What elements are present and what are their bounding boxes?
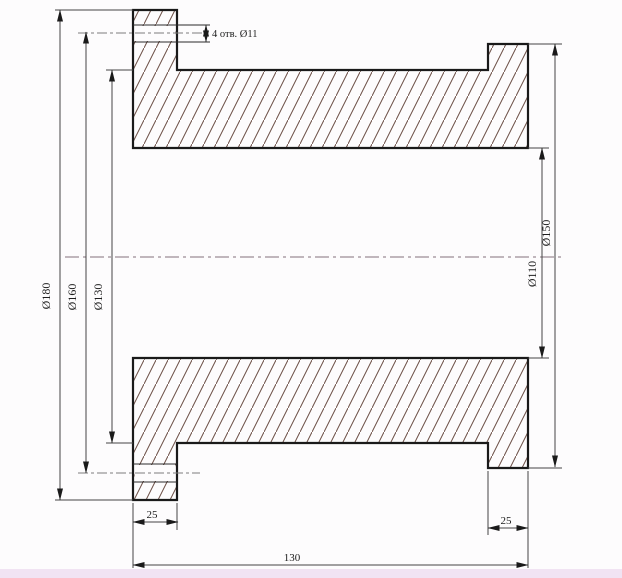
part-upper-section bbox=[133, 10, 528, 148]
label-flange-right-thickness: 25 bbox=[501, 515, 513, 527]
label-dia130: Ø130 bbox=[91, 284, 105, 311]
label-bolt-holes-note: 4 отв. Ø11 bbox=[212, 29, 257, 40]
label-dia160: Ø160 bbox=[65, 284, 79, 311]
engineering-drawing: Ø180 Ø160 Ø130 Ø150 Ø110 4 отв. Ø11 25 2… bbox=[0, 0, 622, 578]
part-section bbox=[133, 10, 528, 500]
label-overall-length: 130 bbox=[284, 552, 301, 564]
label-dia110: Ø110 bbox=[525, 261, 539, 287]
label-flange-left-thickness: 25 bbox=[147, 509, 159, 521]
part-lower-section bbox=[133, 358, 528, 500]
label-dia180: Ø180 bbox=[39, 283, 53, 310]
scan-artifact-strip bbox=[0, 569, 622, 578]
label-dia150: Ø150 bbox=[539, 220, 553, 247]
drawing-canvas: Ø180 Ø160 Ø130 Ø150 Ø110 4 отв. Ø11 25 2… bbox=[0, 0, 622, 578]
